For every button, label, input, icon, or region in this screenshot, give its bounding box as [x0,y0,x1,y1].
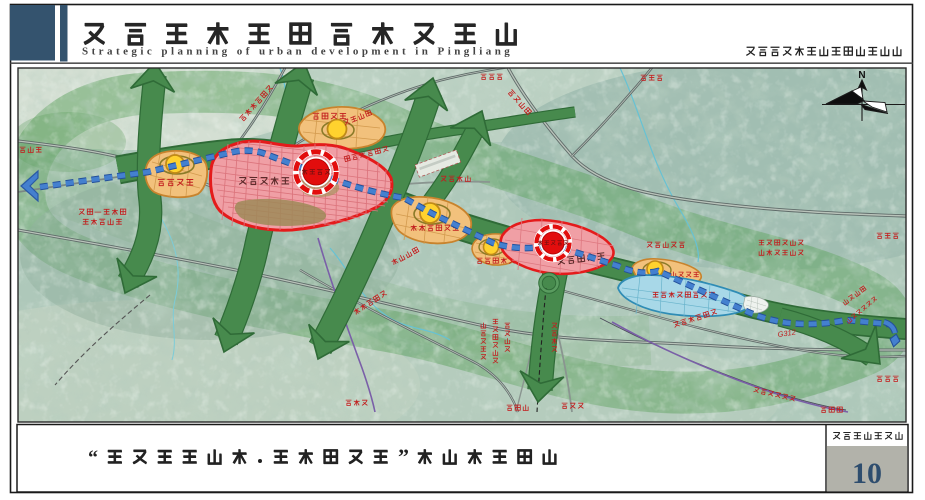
svg-text:N: N [858,70,865,81]
svg-text:“: “ [88,447,98,469]
svg-text:”: ” [398,444,409,469]
svg-text:10: 10 [852,457,882,490]
svg-text:Strategic planning of urban de: Strategic planning of urban development … [82,46,513,58]
